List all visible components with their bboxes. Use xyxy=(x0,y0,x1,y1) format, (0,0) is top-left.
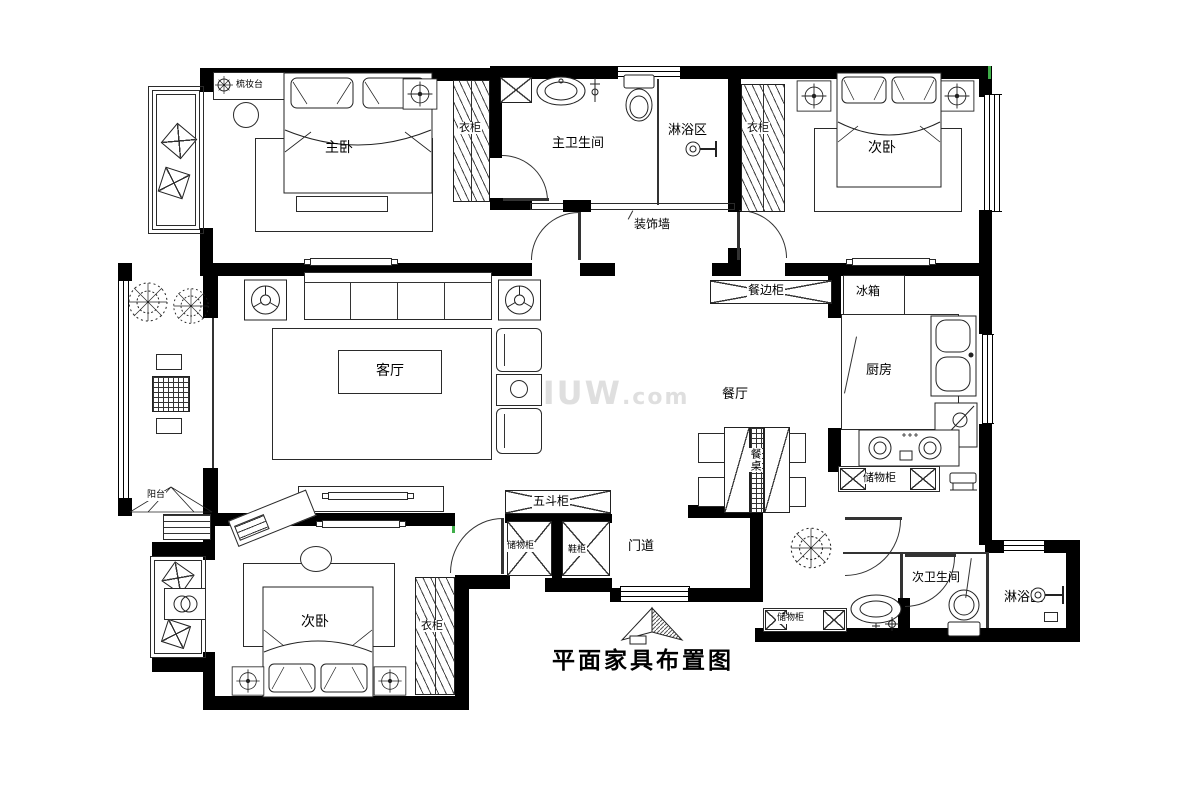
sofa-divider xyxy=(444,283,445,319)
door-arc xyxy=(502,155,548,201)
north-arrow xyxy=(620,606,684,646)
shoe-cabinet-label: 鞋柜 xyxy=(567,546,587,556)
wardrobe-line xyxy=(471,80,472,202)
wall xyxy=(455,575,469,710)
room-label-master-bathroom: 主卫生间 xyxy=(552,137,604,151)
door-arc xyxy=(845,520,901,576)
wall-thin xyxy=(986,554,989,628)
armchair xyxy=(496,408,542,454)
decorative-wall-line xyxy=(530,203,735,210)
armchair-line xyxy=(504,414,505,448)
stool xyxy=(156,418,182,434)
wardrobe-line xyxy=(435,577,436,695)
wall xyxy=(152,658,212,672)
decorative-wall-label: 装饰墙 xyxy=(634,218,670,231)
wall xyxy=(545,578,612,592)
storage-x xyxy=(823,610,845,630)
plant-icon xyxy=(168,286,214,326)
stove xyxy=(858,429,960,467)
wall xyxy=(979,210,992,276)
wall xyxy=(203,696,469,710)
wardrobe-bottom-label: 衣柜 xyxy=(420,620,444,632)
door-arc xyxy=(450,518,503,573)
nightstand-lamp-icon xyxy=(228,666,268,696)
dining-table-label: 餐桌 xyxy=(748,448,762,472)
door-leaf xyxy=(501,518,504,574)
leader-line xyxy=(628,210,634,219)
balcony-door-line xyxy=(212,318,214,468)
storage-x xyxy=(910,468,936,490)
room-label-bedroom-top: 次卧 xyxy=(868,141,896,156)
tv-cap xyxy=(407,493,414,499)
fridge-label: 冰箱 xyxy=(856,285,880,298)
watermark: AIUW.com xyxy=(516,374,689,412)
toilet xyxy=(620,74,658,124)
storage-corridor-label: 储物柜 xyxy=(776,614,805,624)
tv-cap xyxy=(929,259,936,265)
table-lamp xyxy=(510,380,528,398)
faucet-icon xyxy=(884,616,900,632)
bay-window-frame xyxy=(156,94,196,226)
tv xyxy=(328,492,408,500)
room-label-dining: 餐厅 xyxy=(722,388,748,402)
green-tick xyxy=(988,66,991,79)
room-label-balcony: 阳台 xyxy=(146,491,166,501)
wall xyxy=(152,542,212,556)
sofa xyxy=(304,272,492,320)
door-leaf xyxy=(737,212,740,260)
plant-icon xyxy=(124,280,172,324)
tv-cap xyxy=(846,259,853,265)
dining-table-panel xyxy=(764,427,790,513)
door-arc xyxy=(739,210,787,258)
room-label-hallway: 门道 xyxy=(628,540,654,554)
wall xyxy=(979,276,992,334)
room-label-living: 客厅 xyxy=(376,364,404,379)
ceiling-fan-icon xyxy=(497,279,542,321)
dressing-table-label: 梳妆台 xyxy=(236,81,263,91)
door-leaf xyxy=(905,554,956,557)
bed-bottom xyxy=(262,586,374,698)
wall xyxy=(728,66,741,212)
window xyxy=(1003,540,1045,553)
bed-top-right xyxy=(836,72,942,188)
ceiling-lamp-icon xyxy=(795,80,833,112)
five-drawer-chest-label: 五斗柜 xyxy=(532,495,570,508)
small-bench xyxy=(948,470,978,492)
wall xyxy=(979,424,992,545)
rug xyxy=(272,328,492,460)
plan-title: 平面家具布置图 xyxy=(552,641,734,675)
door-leaf xyxy=(503,198,549,201)
door-leaf xyxy=(578,212,581,260)
watermark-domain: .com xyxy=(622,385,689,410)
sofa-back-line xyxy=(304,282,492,283)
fixture-icon xyxy=(588,76,602,106)
chess-table xyxy=(152,376,190,412)
room-label-bathroom-second: 次卫生间 xyxy=(912,571,960,584)
tv-cap xyxy=(304,259,311,265)
armchair xyxy=(496,328,542,372)
tv xyxy=(852,258,930,266)
bay-window xyxy=(984,94,1002,212)
sofa-divider xyxy=(397,283,398,319)
desk-chair xyxy=(300,546,332,572)
coffee-table: 客厅 xyxy=(338,350,442,394)
storage-kitchen-label: 储物柜 xyxy=(862,472,897,484)
plant-icon xyxy=(786,524,836,572)
lamp-icon xyxy=(215,76,233,94)
sofa-divider xyxy=(350,283,351,319)
cups-icon xyxy=(170,593,200,615)
ceiling-lamp-icon xyxy=(402,78,438,110)
toilet xyxy=(942,588,986,640)
wall xyxy=(563,200,591,212)
floor-plan: AIUW.com xyxy=(0,0,1200,800)
wardrobe-master-label: 衣柜 xyxy=(458,122,482,134)
wall xyxy=(118,263,132,281)
ac-platform xyxy=(163,514,211,540)
ceiling-fan-icon xyxy=(243,279,288,321)
storage-entry-label: 储物柜 xyxy=(506,542,535,552)
stool xyxy=(233,102,259,128)
door-leaf xyxy=(845,517,902,520)
vanity-cabinet xyxy=(500,77,532,103)
tv xyxy=(322,520,400,528)
room-label-shower-top: 淋浴区 xyxy=(668,124,707,138)
tv-cap xyxy=(399,521,406,527)
nightstand-lamp-icon xyxy=(370,666,410,696)
window xyxy=(982,334,994,424)
room-label-bedroom-bottom: 次卧 xyxy=(300,615,330,630)
tv xyxy=(310,258,392,266)
room-label-master-bedroom: 主卧 xyxy=(325,141,353,156)
shower-head-icon xyxy=(684,138,720,160)
door-arc xyxy=(531,212,579,260)
green-tick xyxy=(452,526,455,533)
wall xyxy=(1066,540,1080,642)
bed-bench xyxy=(296,196,388,212)
ceiling-lamp-icon xyxy=(938,80,976,112)
wall xyxy=(580,263,615,276)
wardrobe-line xyxy=(763,84,764,212)
balcony-corner-symbol xyxy=(128,484,214,514)
washbasin xyxy=(534,74,588,110)
double-sink xyxy=(930,315,977,397)
floor-drain xyxy=(1044,612,1058,622)
tv-cap xyxy=(316,521,323,527)
shower-divider xyxy=(657,79,659,205)
wall xyxy=(688,588,755,602)
sideboard-label: 餐边柜 xyxy=(747,284,785,297)
dining-table-panel xyxy=(724,427,750,513)
stool xyxy=(156,354,182,370)
wardrobe-top-label: 衣柜 xyxy=(746,122,770,134)
room-label-kitchen: 厨房 xyxy=(866,364,892,378)
wall xyxy=(552,519,562,578)
armchair-line xyxy=(504,334,505,366)
entry-threshold xyxy=(620,586,690,602)
shower-head-icon xyxy=(1028,584,1068,606)
tv-cap xyxy=(322,493,329,499)
tv-cap xyxy=(391,259,398,265)
